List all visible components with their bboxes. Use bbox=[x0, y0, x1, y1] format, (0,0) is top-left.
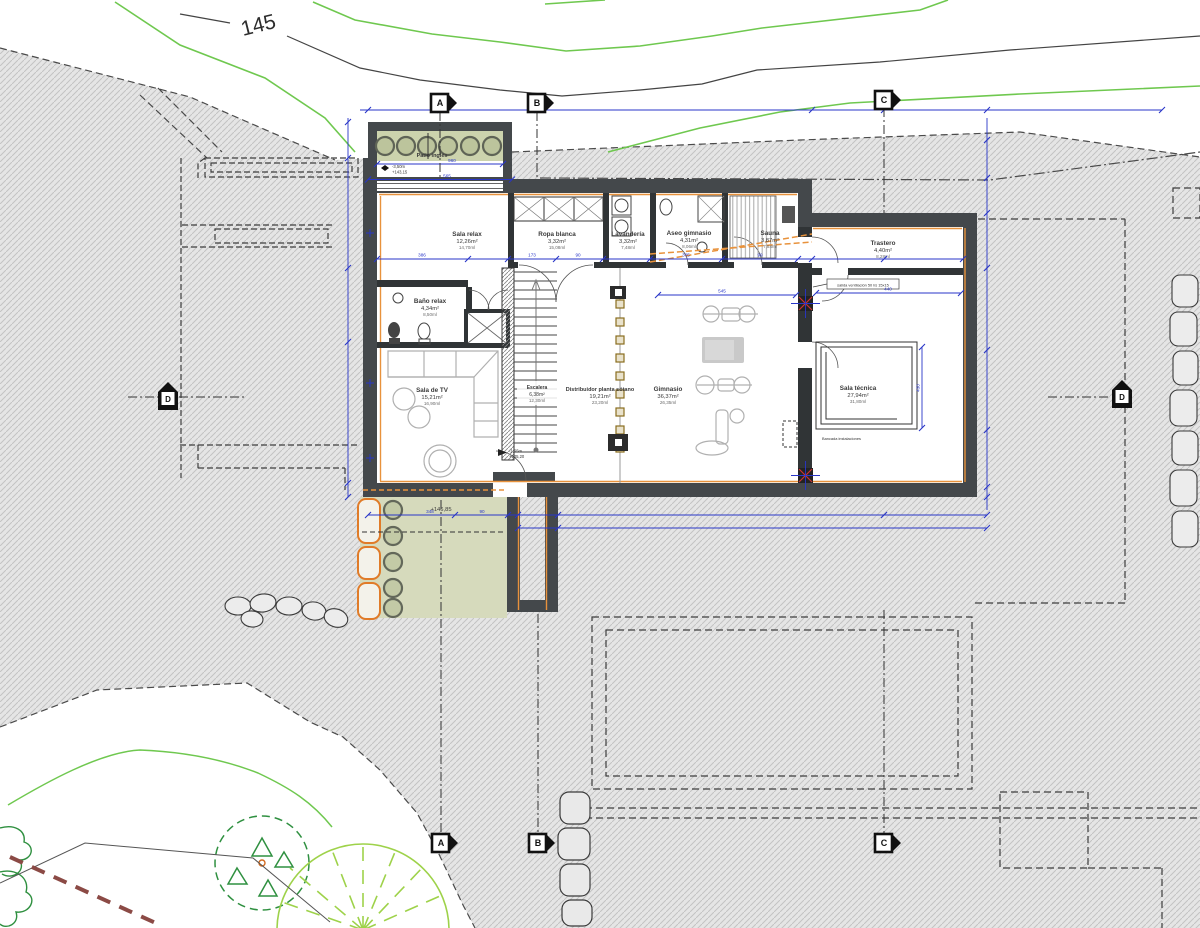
floor-plan-drawing: 145 bbox=[0, 0, 1200, 928]
garden-bottom-left bbox=[0, 750, 449, 928]
tree-bush bbox=[277, 844, 449, 928]
vent-note-text: salida ventilación 50 l/s 15x15 bbox=[837, 283, 889, 288]
svg-text:B: B bbox=[534, 98, 541, 108]
dim-gym-width: 545 bbox=[718, 289, 726, 294]
svg-text:C: C bbox=[881, 95, 888, 105]
patio-window-band bbox=[377, 181, 503, 191]
svg-text:Distribuidor planta sótano: Distribuidor planta sótano bbox=[566, 387, 635, 393]
svg-text:12,30ml: 12,30ml bbox=[529, 398, 545, 403]
room-label-escalera: Escalera 6,38m² 12,30ml bbox=[517, 381, 557, 405]
svg-text:23,20ml: 23,20ml bbox=[592, 400, 608, 405]
dim-terrace-offset: 90 bbox=[479, 509, 485, 514]
level-entry-relative: -1,65m bbox=[509, 449, 523, 454]
planters-orange bbox=[358, 499, 380, 619]
svg-text:Trastero: Trastero bbox=[871, 240, 896, 247]
svg-text:D: D bbox=[165, 395, 171, 404]
dim-int-d: 305 bbox=[682, 253, 690, 258]
svg-text:Sala técnica: Sala técnica bbox=[840, 385, 877, 392]
svg-text:A: A bbox=[437, 98, 444, 108]
svg-text:15,08ml: 15,08ml bbox=[549, 245, 565, 250]
svg-text:Baño relax: Baño relax bbox=[414, 298, 447, 305]
tree-conifer bbox=[215, 816, 309, 910]
dim-int-e: 99 bbox=[757, 253, 763, 258]
svg-text:B: B bbox=[535, 838, 542, 848]
dim-int-b: 173 bbox=[528, 253, 536, 258]
room-label-patio-ingles: Patio inglés bbox=[417, 153, 448, 159]
svg-text:Gimnasio: Gimnasio bbox=[654, 386, 683, 393]
svg-text:26,35ml: 26,35ml bbox=[660, 400, 676, 405]
section-marker-a-top: A bbox=[431, 94, 457, 112]
section-marker-c-top: C bbox=[875, 91, 901, 109]
svg-text:Sala relax: Sala relax bbox=[452, 231, 482, 238]
svg-text:Sala de TV: Sala de TV bbox=[416, 387, 449, 394]
svg-text:31,80ml: 31,80ml bbox=[850, 399, 866, 404]
dim-int-c: 90 bbox=[575, 253, 581, 258]
svg-text:14,70ml: 14,70ml bbox=[459, 245, 475, 250]
svg-text:Sauna: Sauna bbox=[761, 230, 780, 237]
svg-text:C: C bbox=[881, 838, 888, 848]
floor-plan-canvas: 145 bbox=[0, 0, 1200, 928]
dim-patio-inner-width: 565 bbox=[443, 174, 451, 179]
wardrobes bbox=[514, 197, 603, 221]
svg-text:8,50ml: 8,50ml bbox=[423, 312, 437, 317]
svg-text:Ropa blanca: Ropa blanca bbox=[538, 231, 576, 238]
entry-threshold bbox=[493, 472, 555, 481]
bancada-label: Bancada instalaciones bbox=[822, 436, 861, 441]
level-patio-relative: -3,50m bbox=[392, 164, 406, 169]
svg-text:A: A bbox=[438, 838, 445, 848]
garden-path-line bbox=[0, 843, 330, 922]
svg-text:8,28ml: 8,28ml bbox=[876, 254, 890, 259]
section-marker-b-top: B bbox=[528, 94, 554, 112]
svg-text:8,06ml: 8,06ml bbox=[682, 244, 696, 249]
level-entry-absolute: +145,20 bbox=[509, 454, 525, 459]
level-patio-absolute: +143,15 bbox=[392, 170, 408, 175]
dim-int-a: 386 bbox=[418, 253, 426, 258]
dim-patio-width: 960 bbox=[448, 158, 456, 163]
svg-text:Escalera: Escalera bbox=[527, 385, 548, 391]
contour-elevation-label: 145 bbox=[239, 10, 279, 41]
property-line-red-dashed bbox=[10, 857, 160, 925]
svg-text:7,84ml: 7,84ml bbox=[763, 244, 777, 249]
dim-terrace-width: 348 bbox=[426, 509, 434, 514]
svg-text:Aseo gimnasio: Aseo gimnasio bbox=[667, 230, 712, 237]
svg-text:Lavandería: Lavandería bbox=[611, 231, 645, 238]
contour-lines-top: 145 bbox=[115, 0, 1200, 152]
svg-text:D: D bbox=[1119, 393, 1125, 402]
dim-trastero-width: 440 bbox=[884, 287, 892, 292]
dim-tecnica-height: 430 bbox=[916, 384, 921, 392]
svg-text:16,90ml: 16,90ml bbox=[424, 401, 440, 406]
entry-door-opening bbox=[493, 483, 527, 497]
svg-text:7,48ml: 7,48ml bbox=[621, 245, 635, 250]
garden-contour bbox=[8, 750, 332, 827]
